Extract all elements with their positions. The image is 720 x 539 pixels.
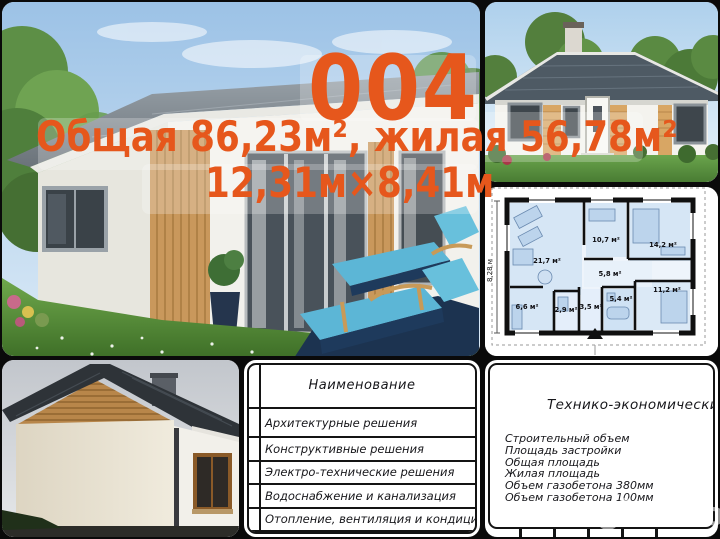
table-row: Архитектурные решения [249,407,475,436]
downpipe [174,428,179,532]
table-row-label: Электро-технические решения [265,465,454,479]
room-label: 6,6 м² [516,303,539,311]
room-label: 21,7 м² [533,257,561,265]
dimensions-overlay: 12,31м×8,41м [205,162,494,204]
height-dimension-label: 8,28 м [486,259,494,282]
construction-scene [2,360,239,537]
tech-panel-title: Технико-экономические показатели [547,397,713,413]
table-row: Водоснабжение и канализация [249,483,475,506]
table-row: Отопление, вентиляция и кондиционировани… [249,507,475,530]
side-window [192,455,233,514]
table-header: Наименование [249,365,475,407]
room-label: 3,5 м² [580,303,603,311]
chimney [563,22,584,54]
room-label: 14,2 м² [649,241,677,249]
gable-wall [16,420,174,532]
spec-table-box: Наименование Архитектурные решения Конст… [247,363,477,534]
spec-table: Наименование Архитектурные решения Конст… [244,360,480,537]
avito-logo-icon [594,494,636,534]
room-label: 11,2 м² [653,286,681,294]
table-row-label: Конструктивные решения [265,442,424,456]
room-label: 5,8 м² [599,270,622,278]
tech-item: Площадь застройки [505,445,713,457]
construction-photo [2,360,239,537]
table-row: Электро-технические решения [249,460,475,483]
room-label: 2,9 м² [555,306,578,314]
floor-plan-drawing: 8,28 м [485,187,718,356]
left-window [44,188,106,250]
table-footer-space [249,530,475,532]
area-overlay: Общая 86,23м², жилая 56,78м² [36,116,678,158]
floor-plan: 8,28 м [485,187,718,356]
table-row: Конструктивные решения [249,436,475,459]
avito-watermark: Avito [594,494,720,534]
table-row-label: Водоснабжение и канализация [265,489,456,503]
table-left-rule [259,365,261,532]
table-row-label: Отопление, вентиляция и кондиционировани… [265,512,475,526]
avito-watermark-text: Avito [636,498,720,530]
room-label: 5,4 м² [610,295,633,303]
listing-collage: 8,28 м [0,0,720,539]
room-label: 10,7 м² [592,236,620,244]
table-row-label: Архитектурные решения [265,416,417,430]
